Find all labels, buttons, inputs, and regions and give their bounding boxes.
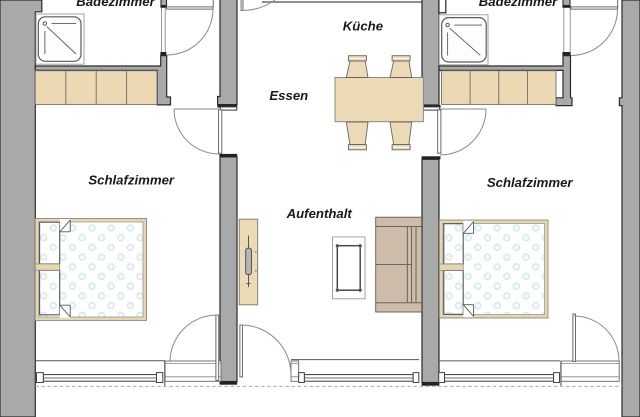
svg-text:Badezimmer: Badezimmer [76, 0, 155, 9]
svg-text:Aufenthalt: Aufenthalt [286, 206, 353, 221]
svg-text:Badezimmer: Badezimmer [479, 0, 558, 9]
svg-text:Küche: Küche [343, 18, 383, 33]
svg-text:Essen: Essen [269, 88, 308, 103]
svg-text:Schlafzimmer: Schlafzimmer [487, 175, 574, 190]
svg-text:Schlafzimmer: Schlafzimmer [88, 173, 175, 188]
